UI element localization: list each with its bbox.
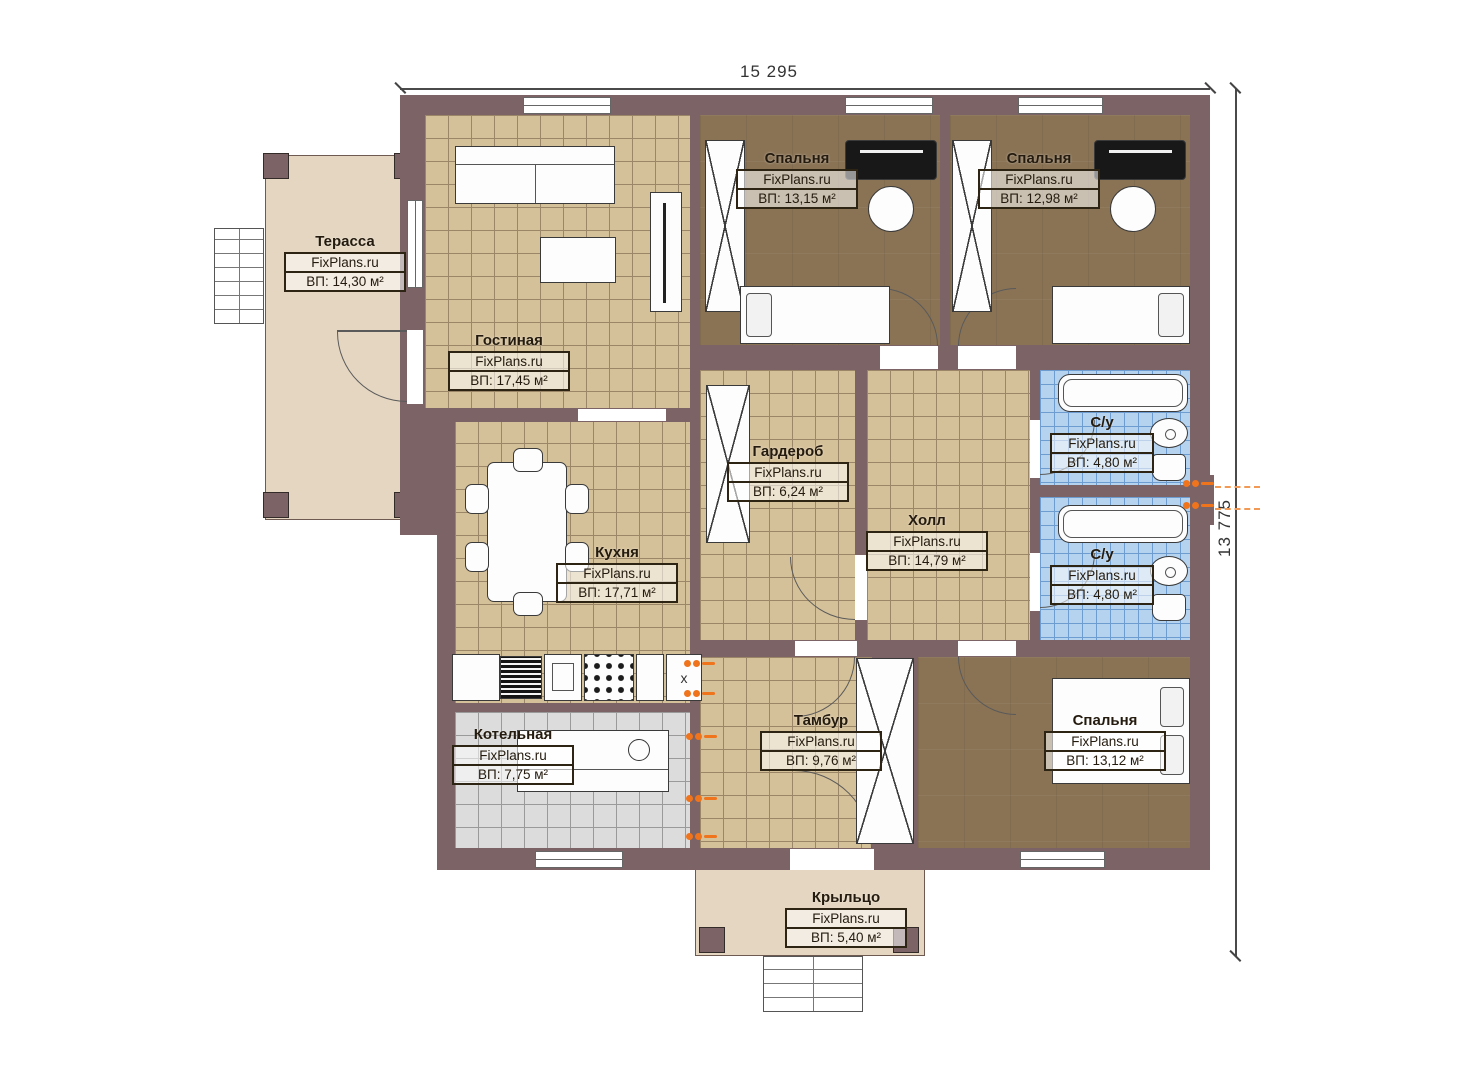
chair xyxy=(513,592,543,616)
door-gap-terrace xyxy=(407,330,423,404)
room-area: ВП: 13,12 м² xyxy=(1046,752,1164,769)
window-bedroom3-bottom xyxy=(1020,851,1105,868)
chair xyxy=(513,448,543,472)
room-area: ВП: 17,71 м² xyxy=(558,584,676,601)
room-name: Гостиная xyxy=(448,332,570,349)
room-area: ВП: 12,98 м² xyxy=(980,190,1098,207)
watermark-text: FixPlans.ru xyxy=(1052,567,1152,586)
pillow xyxy=(1158,293,1184,337)
dimension-line-top xyxy=(400,88,1210,90)
desk xyxy=(845,140,937,180)
chair xyxy=(465,484,489,514)
porch-column xyxy=(699,927,725,953)
desk-chair xyxy=(1110,186,1156,232)
window-bedroom1-top xyxy=(845,97,933,114)
room-name: Кухня xyxy=(556,544,678,561)
room-name: Холл xyxy=(866,512,988,529)
room-name: Гардероб xyxy=(727,443,849,460)
window-boiler-bottom xyxy=(535,851,623,868)
watermark-text: FixPlans.ru xyxy=(1052,435,1152,454)
radiator-pipe xyxy=(1215,508,1260,510)
watermark-text: FixPlans.ru xyxy=(868,533,986,552)
chair xyxy=(465,542,489,572)
room-name: Котельная xyxy=(452,726,574,743)
watermark-text: FixPlans.ru xyxy=(762,733,880,752)
tv-icon xyxy=(663,203,666,303)
room-label-porch: Крыльцо FixPlans.ru ВП: 5,40 м² xyxy=(785,889,907,948)
radiator-icon xyxy=(684,690,715,697)
room-label-boiler: Котельная FixPlans.ru ВП: 7,75 м² xyxy=(452,726,574,785)
porch-stairs xyxy=(763,956,863,1012)
door-gap-bedroom1 xyxy=(880,346,938,369)
bathtub xyxy=(1058,505,1188,543)
coffee-table xyxy=(540,237,616,283)
room-info-box: FixPlans.ru ВП: 4,80 м² xyxy=(1050,433,1154,473)
window-living-left xyxy=(407,200,423,288)
room-name: С/у xyxy=(1050,546,1154,563)
terrace-column xyxy=(263,153,289,179)
room-area: ВП: 14,79 м² xyxy=(868,552,986,569)
room-area: ВП: 17,45 м² xyxy=(450,372,568,389)
room-name: Терасса xyxy=(284,233,406,250)
door-gap-bedroom3 xyxy=(958,641,1016,656)
room-area: ВП: 4,80 м² xyxy=(1052,454,1152,471)
terrace-column xyxy=(263,492,289,518)
radiator-icon xyxy=(686,795,717,802)
room-label-bedroom3: Спальня FixPlans.ru ВП: 13,12 м² xyxy=(1044,712,1166,771)
sofa xyxy=(455,146,615,204)
room-info-box: FixPlans.ru ВП: 17,71 м² xyxy=(556,563,678,603)
dimension-label-height: 13 775 xyxy=(1215,493,1235,563)
boiler-dial xyxy=(628,739,650,761)
room-info-box: FixPlans.ru ВП: 5,40 м² xyxy=(785,908,907,948)
room-area: ВП: 4,80 м² xyxy=(1052,586,1152,603)
room-name: Спальня xyxy=(1044,712,1166,729)
terrace-stairs xyxy=(214,228,264,324)
floor-plan-canvas: 15 295 13 775 xyxy=(0,0,1473,1080)
room-label-kitchen: Кухня FixPlans.ru ВП: 17,71 м² xyxy=(556,544,678,603)
room-label-living: Гостиная FixPlans.ru ВП: 17,45 м² xyxy=(448,332,570,391)
room-label-wardrobe: Гардероб FixPlans.ru ВП: 6,24 м² xyxy=(727,443,849,502)
room-info-box: FixPlans.ru ВП: 9,76 м² xyxy=(760,731,882,771)
room-name: Тамбур xyxy=(760,712,882,729)
door-gap-entry xyxy=(790,849,874,870)
chair xyxy=(565,484,589,514)
watermark-text: FixPlans.ru xyxy=(286,254,404,273)
tv-unit xyxy=(650,192,682,312)
pillow xyxy=(746,293,772,337)
radiator-icon xyxy=(1183,502,1214,509)
room-label-terrace: Терасса FixPlans.ru ВП: 14,30 м² xyxy=(284,233,406,292)
room-info-box: FixPlans.ru ВП: 4,80 м² xyxy=(1050,565,1154,605)
room-label-vestibule: Тамбур FixPlans.ru ВП: 9,76 м² xyxy=(760,712,882,771)
door-gap-bath1 xyxy=(1030,420,1040,478)
radiator-icon xyxy=(686,833,717,840)
watermark-text: FixPlans.ru xyxy=(787,910,905,929)
watermark-text: FixPlans.ru xyxy=(454,747,572,766)
bed-single xyxy=(1052,286,1190,344)
stove-icon xyxy=(584,654,634,701)
room-area: ВП: 13,15 м² xyxy=(738,190,856,207)
room-info-box: FixPlans.ru ВП: 7,75 м² xyxy=(452,745,574,785)
room-label-bath2: С/у FixPlans.ru ВП: 4,80 м² xyxy=(1050,546,1154,605)
radiator-icon xyxy=(684,660,715,667)
room-name: Спальня xyxy=(736,150,858,167)
room-info-box: FixPlans.ru ВП: 14,79 м² xyxy=(866,531,988,571)
window-bedroom2-top xyxy=(1018,97,1103,114)
room-area: ВП: 6,24 м² xyxy=(729,483,847,500)
door-gap-vestibule xyxy=(795,641,857,656)
toilet xyxy=(1152,594,1186,621)
kitchen-sink xyxy=(544,654,582,701)
desk-chair xyxy=(868,186,914,232)
radiator-icon xyxy=(686,733,717,740)
room-info-box: FixPlans.ru ВП: 17,45 м² xyxy=(448,351,570,391)
dimension-line-right xyxy=(1235,88,1237,956)
room-label-bath1: С/у FixPlans.ru ВП: 4,80 м² xyxy=(1050,414,1154,473)
opening-living-kitchen xyxy=(578,409,666,421)
room-name: С/у xyxy=(1050,414,1154,431)
room-info-box: FixPlans.ru ВП: 6,24 м² xyxy=(727,462,849,502)
room-info-box: FixPlans.ru ВП: 13,15 м² xyxy=(736,169,858,209)
bathroom-sink xyxy=(1150,556,1188,586)
door-gap-bedroom2 xyxy=(958,346,1016,369)
sink-basin xyxy=(552,663,574,691)
room-area: ВП: 14,30 м² xyxy=(286,273,404,290)
room-info-box: FixPlans.ru ВП: 14,30 м² xyxy=(284,252,406,292)
watermark-text: FixPlans.ru xyxy=(450,353,568,372)
room-name: Крыльцо xyxy=(785,889,907,906)
room-floor-hall xyxy=(867,370,1030,640)
radiator-pipe xyxy=(1215,486,1260,488)
room-area: ВП: 9,76 м² xyxy=(762,752,880,769)
fridge-icon xyxy=(500,656,542,699)
room-area: ВП: 7,75 м² xyxy=(454,766,572,783)
room-name: Спальня xyxy=(978,150,1100,167)
room-area: ВП: 5,40 м² xyxy=(787,929,905,946)
kitchen-cabinet xyxy=(452,654,500,701)
bathtub xyxy=(1058,374,1188,412)
watermark-text: FixPlans.ru xyxy=(738,171,856,190)
watermark-text: FixPlans.ru xyxy=(729,464,847,483)
radiator-icon xyxy=(1183,480,1214,487)
room-label-bedroom2: Спальня FixPlans.ru ВП: 12,98 м² xyxy=(978,150,1100,209)
door-gap-bath2 xyxy=(1030,553,1040,611)
window-living-top xyxy=(523,97,611,114)
watermark-text: FixPlans.ru xyxy=(558,565,676,584)
room-info-box: FixPlans.ru ВП: 13,12 м² xyxy=(1044,731,1166,771)
dining-table xyxy=(487,462,567,602)
room-info-box: FixPlans.ru ВП: 12,98 м² xyxy=(978,169,1100,209)
kitchen-cabinet xyxy=(636,654,664,701)
bathroom-sink xyxy=(1150,418,1188,448)
desk xyxy=(1094,140,1186,180)
dimension-label-width: 15 295 xyxy=(740,62,798,82)
bed-single xyxy=(740,286,890,344)
room-label-bedroom1: Спальня FixPlans.ru ВП: 13,15 м² xyxy=(736,150,858,209)
watermark-text: FixPlans.ru xyxy=(980,171,1098,190)
room-label-hall: Холл FixPlans.ru ВП: 14,79 м² xyxy=(866,512,988,571)
toilet xyxy=(1152,454,1186,481)
watermark-text: FixPlans.ru xyxy=(1046,733,1164,752)
